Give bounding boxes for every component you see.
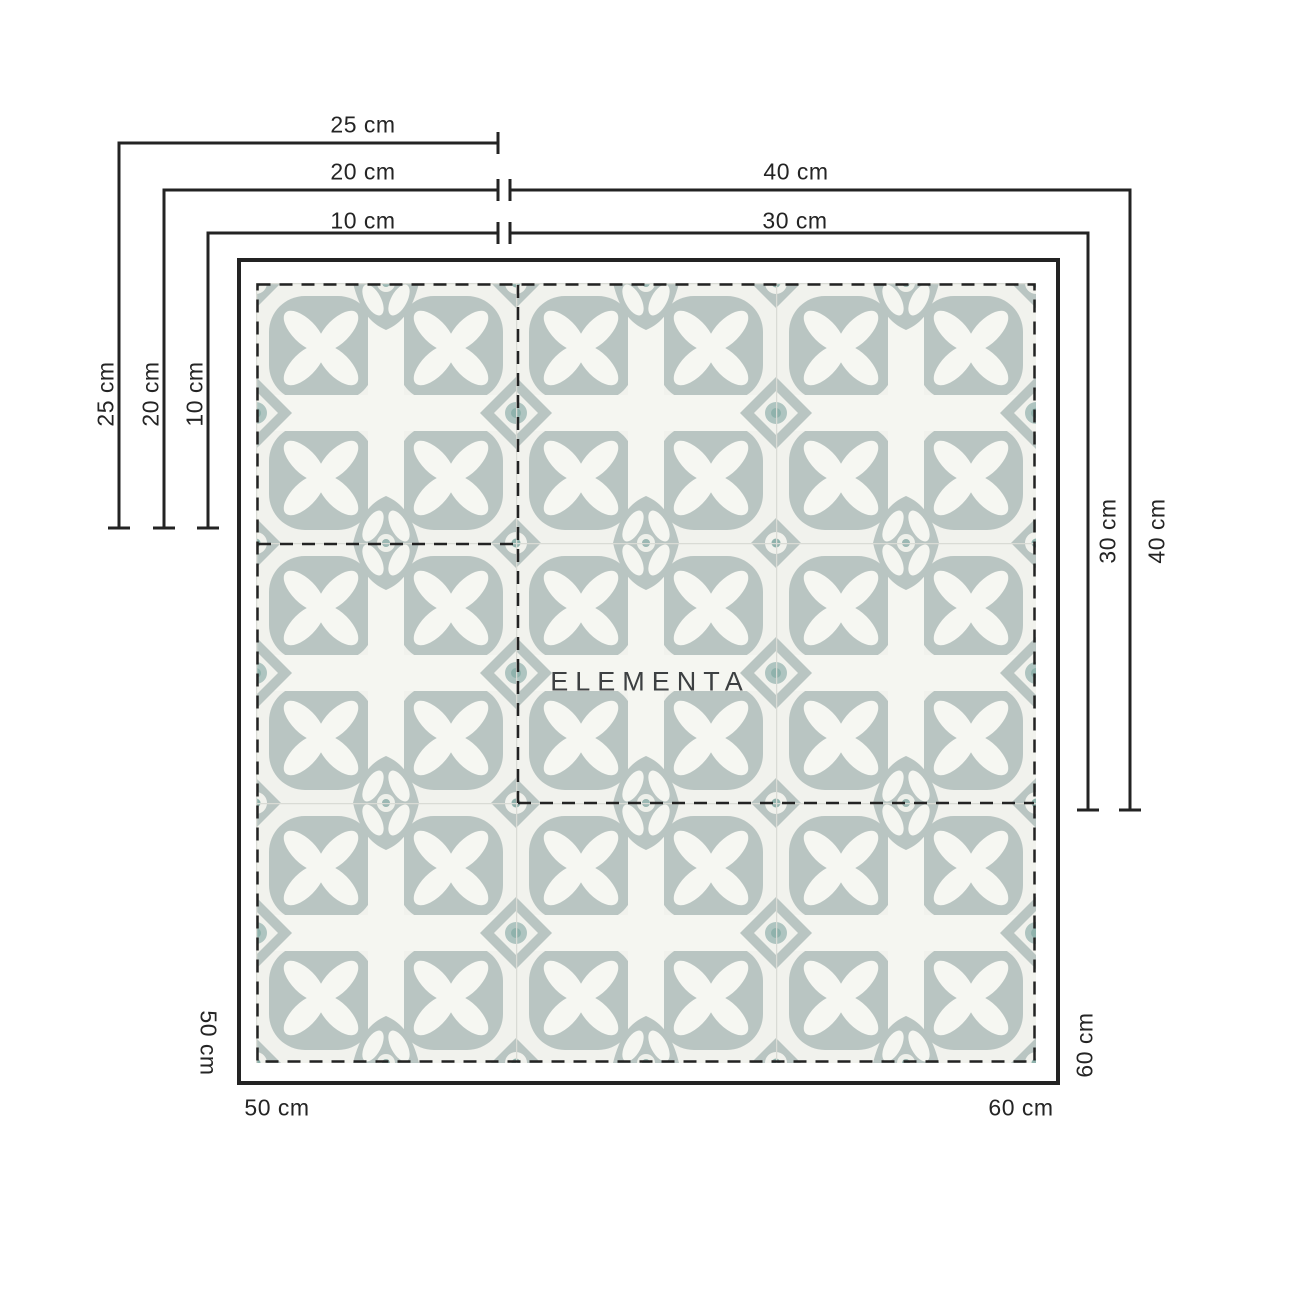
frame-label-50-side: 50 cm xyxy=(195,1010,222,1075)
dim-label-30-top: 30 cm xyxy=(762,208,827,235)
dim-label-40-top: 40 cm xyxy=(763,159,828,186)
dim-label-25-left: 25 cm xyxy=(93,361,120,426)
frame-label-50-bottom: 50 cm xyxy=(244,1095,309,1122)
dim-label-20-left: 20 cm xyxy=(138,361,165,426)
dim-label-40-right: 40 cm xyxy=(1144,498,1171,563)
dim-label-20-top: 20 cm xyxy=(330,159,395,186)
tile-pattern: ELEMENTA xyxy=(256,283,1036,1063)
frame-label-60-bottom: 60 cm xyxy=(988,1095,1053,1122)
dim-label-10-top: 10 cm xyxy=(330,208,395,235)
brand-watermark: ELEMENTA xyxy=(550,667,750,698)
dim-label-10-left: 10 cm xyxy=(182,361,209,426)
dim-label-30-right: 30 cm xyxy=(1095,498,1122,563)
tile-size-diagram: ELEMENTA 25 cm 20 cm 10 cm 40 cm 30 cm 2… xyxy=(0,0,1291,1291)
frame-label-60-side: 60 cm xyxy=(1072,1012,1099,1077)
dim-label-25-top: 25 cm xyxy=(330,112,395,139)
